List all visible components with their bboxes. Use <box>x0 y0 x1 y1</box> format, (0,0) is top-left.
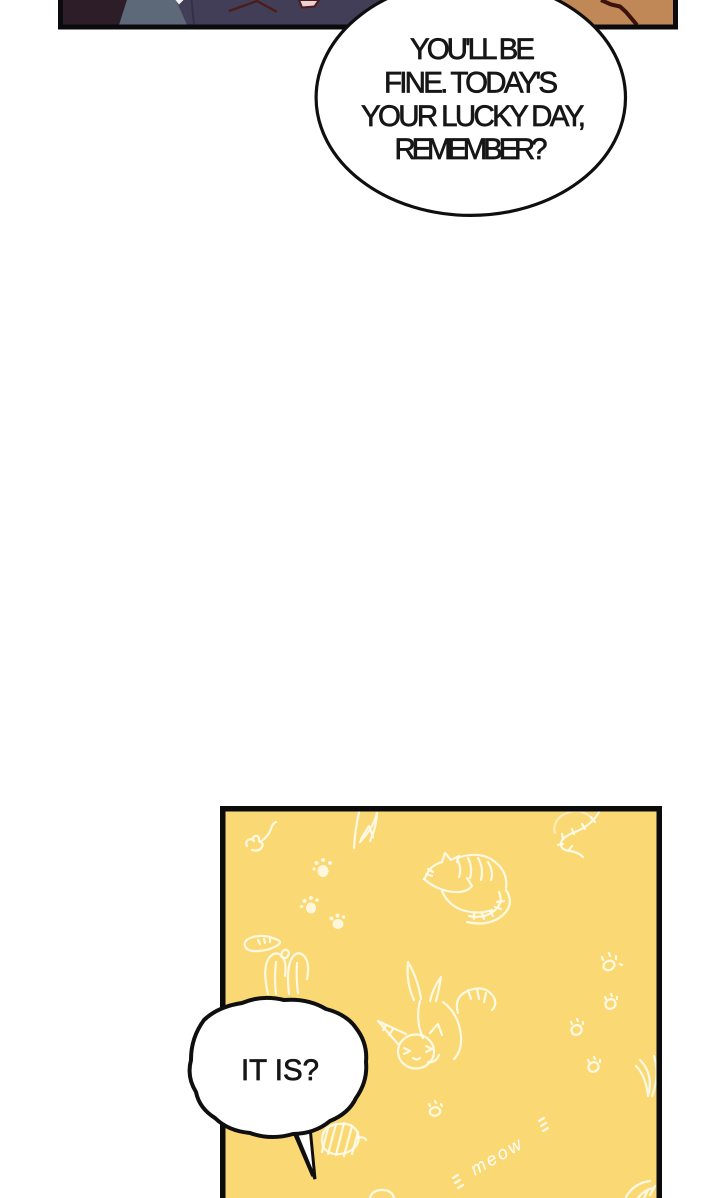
svg-text:REMEMBER?: REMEMBER? <box>395 133 548 166</box>
svg-text:YOU'LL BE: YOU'LL BE <box>410 33 535 66</box>
svg-text:IT IS?: IT IS? <box>241 1054 319 1087</box>
svg-text:FINE. TODAY'S: FINE. TODAY'S <box>384 67 558 100</box>
svg-text:YOUR LUCKY DAY,: YOUR LUCKY DAY, <box>361 100 586 133</box>
